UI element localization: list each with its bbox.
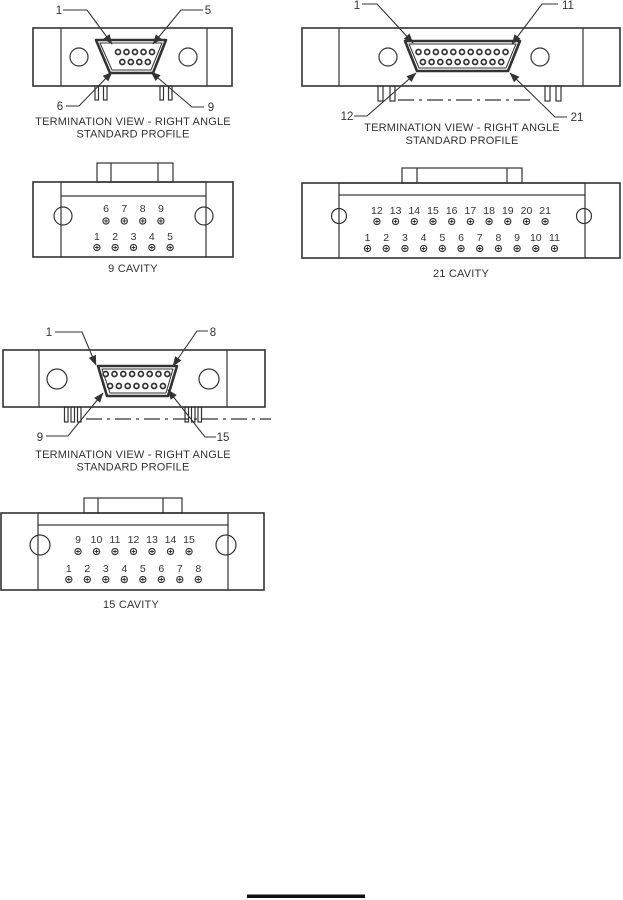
cavity-number: 4 xyxy=(421,232,427,244)
contact-ring-icon xyxy=(160,384,165,389)
contact-ring-icon xyxy=(138,372,143,377)
cavity-number: 7 xyxy=(121,203,127,215)
mounting-hole-right xyxy=(179,48,197,66)
caption-line-1: TERMINATION VIEW - RIGHT ANGLE xyxy=(364,122,560,134)
contact-ring-icon xyxy=(420,60,425,65)
pin-row-bottom xyxy=(108,384,166,389)
cavity-title: 21 CAVITY xyxy=(433,268,489,280)
contact-ring-icon xyxy=(460,50,465,55)
cavity-view-21: 12131415161718192021 1234567891011 21 CA… xyxy=(302,168,620,280)
pin-callout-1: 1 xyxy=(56,5,62,17)
cavity-number: 1 xyxy=(365,232,371,244)
mounting-legs xyxy=(378,86,561,101)
connector-body xyxy=(302,28,620,86)
pin-callout-11: 11 xyxy=(562,0,574,12)
contact-ring-icon xyxy=(116,384,121,389)
contact-ring-icon xyxy=(133,50,138,55)
contact-ring-icon xyxy=(124,50,129,55)
pin-callout-8: 8 xyxy=(210,327,216,339)
cavity-number: 4 xyxy=(121,563,127,575)
cavity-number: 14 xyxy=(165,534,177,546)
contact-ring-icon xyxy=(143,384,148,389)
contact-ring-icon xyxy=(152,384,157,389)
cavity-number: 20 xyxy=(521,205,533,217)
cavity-number: 3 xyxy=(402,232,408,244)
pin-row-top xyxy=(416,50,508,55)
cavity-number: 4 xyxy=(149,231,155,243)
contact-ring-icon xyxy=(416,50,421,55)
contact-ring-icon xyxy=(130,372,135,377)
cavity-number: 2 xyxy=(383,232,389,244)
cavity-number: 5 xyxy=(167,231,173,243)
cavity-number: 14 xyxy=(408,205,420,217)
pin-callout-1: 1 xyxy=(46,327,52,339)
mounting-hole-right xyxy=(577,209,592,224)
cavity-number: 6 xyxy=(458,232,464,244)
cavity-title: 9 CAVITY xyxy=(108,263,158,275)
cavity-number: 8 xyxy=(495,232,501,244)
contact-ring-icon xyxy=(438,60,443,65)
contact-ring-icon xyxy=(128,60,133,65)
connector-body xyxy=(33,28,232,86)
contact-ring-icon xyxy=(451,50,456,55)
pin-callout-1: 1 xyxy=(354,0,360,12)
contact-ring-icon xyxy=(156,372,161,377)
contact-ring-icon xyxy=(112,372,117,377)
d-sub-shell xyxy=(405,41,520,71)
contact-ring-icon xyxy=(125,384,130,389)
cavity-row-top: 9101112131415 xyxy=(75,534,195,555)
cavity-view-9: 6789 12345 9 CAVITY xyxy=(33,163,233,275)
cavity-number: 8 xyxy=(140,203,146,215)
drawing-page: 1 5 6 9 TERMINATION VIEW - RIGHT ANGLE S… xyxy=(0,0,623,900)
contact-ring-icon xyxy=(447,60,452,65)
cavity-number: 1 xyxy=(94,231,100,243)
cavity-number: 15 xyxy=(183,534,195,546)
polarization-tab xyxy=(97,163,173,182)
contact-ring-icon xyxy=(137,60,142,65)
cavity-number: 10 xyxy=(91,534,103,546)
caption-line-1: TERMINATION VIEW - RIGHT ANGLE xyxy=(35,116,231,128)
contact-ring-icon xyxy=(145,60,150,65)
contact-ring-icon xyxy=(499,60,504,65)
contact-ring-icon xyxy=(503,50,508,55)
connector-drawing-svg: 1 5 6 9 TERMINATION VIEW - RIGHT ANGLE S… xyxy=(0,0,623,900)
face-recess xyxy=(38,513,228,525)
pin-callout-6: 6 xyxy=(57,101,63,113)
mounting-hole-left xyxy=(70,48,88,66)
contact-ring-icon xyxy=(141,50,146,55)
face-recess xyxy=(339,183,585,195)
pin-callout-15: 15 xyxy=(217,432,230,444)
contact-ring-icon xyxy=(108,384,113,389)
mounting-hole-left xyxy=(379,48,397,66)
pin-callout-21: 21 xyxy=(571,112,584,124)
d-sub-shell-inner xyxy=(100,43,162,70)
cavity-number: 9 xyxy=(514,232,520,244)
cavity-title: 15 CAVITY xyxy=(103,599,159,611)
contact-ring-icon xyxy=(473,60,478,65)
cavity-number: 7 xyxy=(477,232,483,244)
contact-ring-icon xyxy=(481,60,486,65)
contact-ring-icon xyxy=(486,50,491,55)
cavity-number: 12 xyxy=(371,205,383,217)
cavity-row-top: 6789 xyxy=(103,203,164,224)
cavity-number: 9 xyxy=(75,534,81,546)
face-recess xyxy=(61,182,206,196)
cavity-number: 13 xyxy=(146,534,158,546)
contact-ring-icon xyxy=(455,60,460,65)
pin-callout-12: 12 xyxy=(341,111,354,123)
contact-ring-icon xyxy=(425,50,430,55)
cavity-row-bottom: 1234567891011 xyxy=(364,232,560,252)
mounting-hole-right xyxy=(199,369,219,389)
mounting-hole-left xyxy=(30,535,50,555)
cavity-number: 21 xyxy=(539,205,551,217)
cavity-number: 16 xyxy=(446,205,458,217)
contact-ring-icon xyxy=(433,50,438,55)
contact-ring-icon xyxy=(494,50,499,55)
cavity-row-bottom: 12345 xyxy=(94,231,173,251)
pin-callout-9: 9 xyxy=(208,102,214,114)
termination-view-15: 1 8 9 15 TERMINATION VIEW - RIGHT ANGLE … xyxy=(3,327,271,474)
caption-line-2: STANDARD PROFILE xyxy=(405,135,518,147)
contact-ring-icon xyxy=(147,372,152,377)
contact-ring-icon xyxy=(490,60,495,65)
cavity-view-15: 9101112131415 12345678 15 CAVITY xyxy=(1,498,264,611)
cavity-number: 19 xyxy=(502,205,514,217)
cavity-number: 9 xyxy=(158,203,164,215)
footer-rule xyxy=(247,895,365,899)
cavity-number: 5 xyxy=(140,563,146,575)
mounting-hole-right xyxy=(216,535,236,555)
cavity-number: 3 xyxy=(131,231,137,243)
pin-row-bottom xyxy=(120,60,151,65)
contact-ring-icon xyxy=(134,384,139,389)
contact-ring-icon xyxy=(150,50,155,55)
contact-ring-icon xyxy=(103,372,108,377)
pin-callout-9: 9 xyxy=(37,432,43,444)
polarization-tab xyxy=(84,498,182,513)
pin-row-bottom xyxy=(420,60,503,65)
cavity-row-top: 12131415161718192021 xyxy=(371,205,551,225)
mounting-legs xyxy=(95,86,172,100)
termination-view-9: 1 5 6 9 TERMINATION VIEW - RIGHT ANGLE S… xyxy=(33,5,232,141)
cavity-number: 7 xyxy=(177,563,183,575)
contact-ring-icon xyxy=(477,50,482,55)
contact-ring-icon xyxy=(165,372,170,377)
mounting-hole-right xyxy=(531,48,549,66)
caption-line-2: STANDARD PROFILE xyxy=(76,129,189,141)
cavity-number: 6 xyxy=(158,563,164,575)
cavity-number: 15 xyxy=(427,205,439,217)
cavity-number: 11 xyxy=(549,232,560,244)
cavity-number: 12 xyxy=(128,534,140,546)
mounting-hole-left xyxy=(54,207,72,225)
contact-ring-icon xyxy=(121,372,126,377)
termination-view-21: 1 11 12 21 TERMINATION VIEW - RIGHT ANGL… xyxy=(302,0,620,147)
cavity-number: 13 xyxy=(390,205,402,217)
cavity-number: 10 xyxy=(530,232,542,244)
cavity-number: 1 xyxy=(66,563,72,575)
pin-row-top xyxy=(103,372,170,377)
cavity-number: 11 xyxy=(110,534,121,546)
caption-line-2: STANDARD PROFILE xyxy=(76,462,189,474)
cavity-number: 3 xyxy=(103,563,109,575)
cavity-number: 6 xyxy=(103,203,109,215)
contact-ring-icon xyxy=(120,60,125,65)
polarization-tab xyxy=(402,168,522,183)
contact-ring-icon xyxy=(442,50,447,55)
cavity-number: 17 xyxy=(465,205,477,217)
mounting-hole-right xyxy=(195,207,213,225)
pin-callout-5: 5 xyxy=(205,5,211,17)
cavity-number: 5 xyxy=(439,232,445,244)
mounting-hole-left xyxy=(47,369,67,389)
contact-ring-icon xyxy=(116,50,121,55)
cavity-row-bottom: 12345678 xyxy=(66,563,202,583)
cavity-number: 18 xyxy=(483,205,495,217)
pin-row-top xyxy=(116,50,155,55)
cavity-number: 2 xyxy=(84,563,90,575)
connector-body xyxy=(3,350,265,407)
contact-ring-icon xyxy=(429,60,434,65)
contact-ring-icon xyxy=(468,50,473,55)
leader-lines xyxy=(63,10,204,107)
cavity-number: 2 xyxy=(112,231,118,243)
cavity-number: 8 xyxy=(195,563,201,575)
caption-line-1: TERMINATION VIEW - RIGHT ANGLE xyxy=(35,449,231,461)
contact-ring-icon xyxy=(464,60,469,65)
